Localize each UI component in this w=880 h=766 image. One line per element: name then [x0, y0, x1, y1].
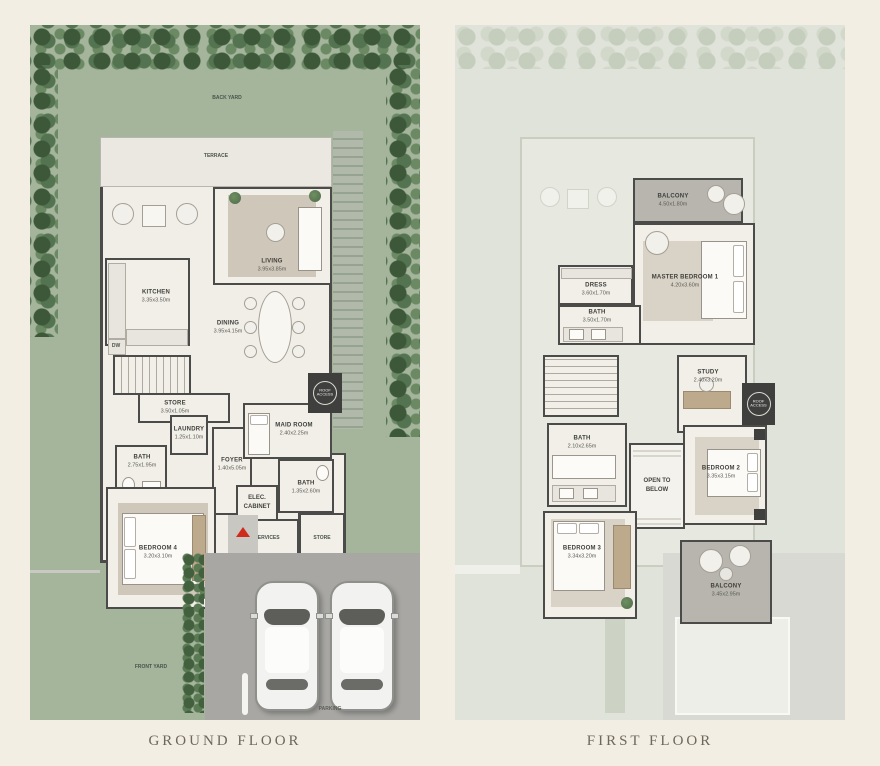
- lounge-chair: [112, 203, 134, 225]
- lounge-chair: [176, 203, 198, 225]
- services-label: SERVICES: [254, 535, 279, 541]
- sink-icon: [583, 488, 598, 499]
- sink-icon: [591, 329, 606, 340]
- first-floor-title: FIRST FLOOR: [455, 733, 845, 750]
- ff-balcony-rear-label: BALCONY 3.45x2.95m: [710, 584, 741, 599]
- balcony-chair: [707, 185, 725, 203]
- ff-master-bedroom-label: MASTER BEDROOM 1 4.20x3.60m: [652, 275, 719, 290]
- pillow: [733, 281, 744, 313]
- nightstand: [754, 509, 765, 520]
- car-icon: [255, 581, 319, 711]
- car-windshield: [264, 609, 310, 625]
- gf-staircase: [113, 355, 191, 395]
- gf-bedroom4-label: BEDROOM 4 3.20x3.10m: [139, 546, 177, 561]
- toilet-icon: [316, 465, 329, 481]
- shrub-border-left: [30, 65, 58, 337]
- car-roof: [265, 627, 309, 673]
- living-sofa: [298, 207, 322, 271]
- ghost-roof-slab: [675, 617, 790, 715]
- terrace-label: TERRACE: [204, 153, 228, 159]
- nightstand: [754, 429, 765, 440]
- ff-dress-label: DRESS 3.60x1.70m: [582, 283, 611, 298]
- car-mirror: [391, 613, 399, 619]
- pillow: [250, 415, 268, 425]
- gf-kitchen-label: KITCHEN 3.35x3.50m: [142, 290, 171, 305]
- plant-icon: [309, 190, 321, 202]
- dining-chair: [244, 297, 257, 310]
- master-armchair: [645, 231, 669, 255]
- coffee-table: [266, 223, 285, 242]
- back-yard-label: BACK YARD: [212, 95, 241, 101]
- pillow: [557, 523, 577, 534]
- car-mirror: [325, 613, 333, 619]
- shrub-border-top: [30, 25, 420, 71]
- gf-living-label: LIVING 3.95x3.85m: [258, 259, 287, 274]
- pillow: [733, 245, 744, 277]
- gf-terrace: [100, 137, 332, 187]
- plot-boundary-line: [30, 570, 100, 573]
- shrub-border-right: [386, 65, 420, 437]
- pillow: [579, 523, 599, 534]
- ff-study-label: STUDY 2.40x3.20m: [694, 370, 723, 385]
- car-mirror: [250, 613, 258, 619]
- plant-icon: [621, 597, 633, 609]
- bedroom3-wardrobe: [613, 525, 631, 589]
- void-hatch: [633, 515, 681, 525]
- store-small-label: STORE: [313, 535, 330, 541]
- kitchen-counter: [108, 263, 126, 339]
- gf-bath-label: BATH 2.75x1.95m: [128, 455, 157, 470]
- ghost-path: [455, 565, 520, 574]
- car-icon: [330, 581, 394, 711]
- void-hatch: [633, 447, 681, 457]
- dining-chair: [244, 345, 257, 358]
- balcony-chair: [729, 545, 751, 567]
- dining-chair: [292, 321, 305, 334]
- first-floor-panel: BALCONY 4.50x1.80m MASTER BEDROOM 1 4.20…: [455, 25, 845, 720]
- ghost-lounge-table: [567, 189, 589, 209]
- car-rear-window: [341, 679, 383, 690]
- balcony-chair: [723, 193, 745, 215]
- car-roof: [340, 627, 384, 673]
- ff-staircase: [543, 355, 619, 417]
- entrance-arrow-icon: [236, 527, 250, 537]
- gf-maid-room-label: MAID ROOM 2.40x2.25m: [275, 423, 312, 438]
- roof-access-box: ROOF ACCESS: [308, 373, 342, 413]
- ff-master-bath-label: BATH 3.50x1.70m: [583, 310, 612, 325]
- balcony-table: [719, 567, 733, 581]
- dining-table: [258, 291, 292, 363]
- pillow: [747, 453, 758, 472]
- kitchen-counter: [126, 329, 188, 346]
- pillow: [124, 549, 136, 579]
- wardrobe-strip: [561, 268, 632, 279]
- ground-floor-panel: BACK YARD TERRACE LIVING 3.95x3.85m DW K…: [30, 25, 420, 720]
- ghost-lounge-chair: [540, 187, 560, 207]
- lounge-table: [142, 205, 166, 227]
- roof-access-box: ROOF ACCESS: [742, 383, 775, 425]
- pillow: [124, 517, 136, 547]
- sink-icon: [559, 488, 574, 499]
- gf-foyer-label: FOYER 1.40x5.05m: [218, 458, 247, 473]
- study-desk: [683, 391, 731, 409]
- dining-chair: [244, 321, 257, 334]
- gf-guest-bath-label: BATH 1.35x2.60m: [292, 481, 321, 496]
- dining-chair: [292, 345, 305, 358]
- driveway-marker: [242, 673, 248, 715]
- hedge-strip: [182, 553, 204, 713]
- car-mirror: [316, 613, 324, 619]
- floor-plan-sheet: BACK YARD TERRACE LIVING 3.95x3.85m DW K…: [0, 0, 880, 766]
- ff-balcony-front-label: BALCONY 4.50x1.80m: [657, 194, 688, 209]
- parking-label: PARKING: [319, 706, 342, 712]
- gf-dining-label: DINING 3.95x4.15m: [214, 321, 243, 336]
- car-rear-window: [266, 679, 308, 690]
- ff-shared-bath-label: BATH 2.10x2.65m: [568, 436, 597, 451]
- ff-balcony-rear: [680, 540, 772, 624]
- gf-store-label: STORE 3.50x1.05m: [161, 401, 190, 416]
- ghost-lounge-chair: [597, 187, 617, 207]
- gf-laundry-label: LAUNDRY 1.25x1.10m: [174, 427, 205, 442]
- ff-bedroom3-label: BEDROOM 3 3.34x3.20m: [563, 546, 601, 561]
- bathtub: [552, 455, 616, 479]
- dining-chair: [292, 297, 305, 310]
- ghost-shrub-border: [455, 25, 845, 69]
- car-windshield: [339, 609, 385, 625]
- dw-label: DW: [112, 343, 120, 349]
- elec-cabinet-label: ELEC. CABINET: [242, 494, 272, 512]
- ground-floor-title: GROUND FLOOR: [30, 733, 420, 750]
- plant-icon: [229, 192, 241, 204]
- front-yard-label: FRONT YARD: [135, 664, 167, 670]
- pillow: [747, 473, 758, 492]
- open-to-below-label: OPEN TO BELOW: [642, 477, 672, 495]
- ff-bedroom2-label: BEDROOM 2 3.35x3.15m: [702, 466, 740, 481]
- sink-icon: [569, 329, 584, 340]
